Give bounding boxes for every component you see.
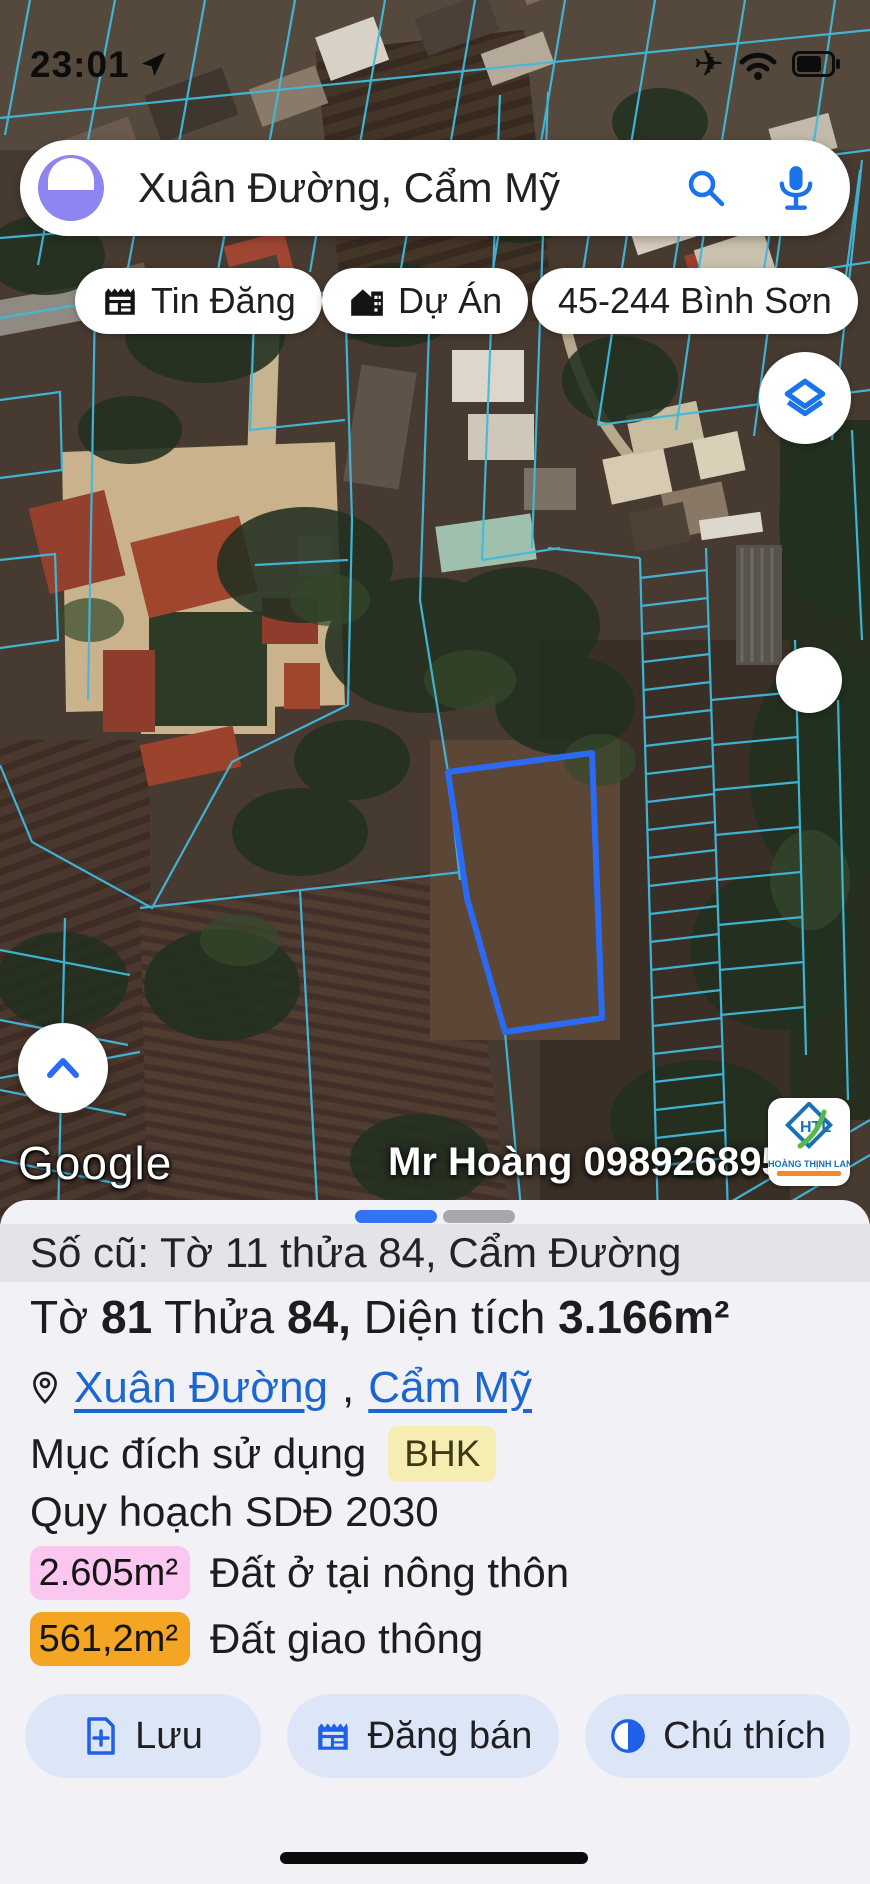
battery-icon [792, 50, 842, 78]
house-icon [348, 282, 386, 320]
zone-area-badge: 561,2m² [30, 1612, 190, 1666]
purpose-label: Mục đích sử dụng [30, 1430, 366, 1478]
location-arrow-icon [138, 50, 168, 80]
brand-logo: HTL HOÀNG THỊNH LAND [768, 1098, 850, 1186]
wifi-icon [738, 48, 778, 80]
chip-binh-son[interactable]: 45-244 Bình Sơn [532, 268, 858, 334]
chip-label: Dự Án [398, 280, 502, 322]
expand-sheet-button[interactable] [18, 1023, 108, 1113]
chip-du-an[interactable]: Dự Án [322, 268, 528, 334]
map-control-button[interactable] [776, 647, 842, 713]
district-link[interactable]: Cẩm Mỹ [368, 1363, 532, 1413]
sheet-page-indicator-active[interactable] [355, 1210, 437, 1223]
parcel-title: Tờ 81 Thửa 84, Diện tích 3.166m² [30, 1290, 729, 1344]
land-purpose-row: Mục đích sử dụng BHK [30, 1426, 496, 1482]
agent-watermark: Mr Hoàng 0989268955 [388, 1140, 806, 1185]
sheet-page-indicator[interactable] [443, 1210, 515, 1223]
contrast-icon [609, 1717, 647, 1755]
old-parcel-id: Số cũ: Tờ 11 thửa 84, Cẩm Đường [0, 1224, 870, 1282]
app-screen: 23:01 ✈ [0, 0, 870, 1884]
zone-label: Đất ở tại nông thôn [210, 1549, 569, 1597]
action-buttons: Lưu Đăng bán [0, 1694, 870, 1778]
layers-icon [780, 373, 830, 423]
location-pin-icon [30, 1369, 60, 1407]
save-button[interactable]: Lưu [25, 1694, 261, 1778]
google-logo: Google [18, 1136, 172, 1190]
chip-label: Tin Đăng [151, 280, 296, 322]
zone-row-traffic: 561,2m² Đất giao thông [30, 1612, 483, 1666]
account-avatar[interactable] [38, 155, 104, 221]
sell-button[interactable]: Đăng bán [287, 1694, 559, 1778]
newspaper-icon [101, 282, 139, 320]
file-plus-icon [83, 1715, 119, 1757]
chevron-up-icon [36, 1046, 90, 1090]
search-input[interactable]: Xuân Đường, Cẩm Mỹ [138, 140, 560, 236]
legend-button[interactable]: Chú thích [585, 1694, 850, 1778]
brand-slogan-bar [777, 1171, 841, 1176]
home-indicator[interactable] [280, 1852, 588, 1864]
newspaper-icon [314, 1717, 352, 1755]
brand-name: HOÀNG THỊNH LAND [768, 1159, 850, 1169]
clock: 23:01 [30, 44, 130, 86]
status-bar: 23:01 ✈ [0, 44, 870, 88]
zone-row-residential: 2.605m² Đất ở tại nông thôn [30, 1546, 569, 1600]
airplane-mode-icon: ✈ [694, 46, 724, 82]
purpose-badge: BHK [388, 1426, 496, 1482]
zone-label: Đất giao thông [210, 1615, 483, 1663]
chip-label: 45-244 Bình Sơn [558, 280, 832, 322]
brand-diamond-icon: HTL [780, 1102, 838, 1158]
mic-icon[interactable] [772, 164, 820, 212]
planning-title: Quy hoạch SDĐ 2030 [30, 1488, 439, 1536]
parcel-info-sheet[interactable]: Số cũ: Tờ 11 thửa 84, Cẩm Đường Tờ 81 Th… [0, 1200, 870, 1884]
search-bar[interactable]: Xuân Đường, Cẩm Mỹ [20, 140, 850, 236]
commune-link[interactable]: Xuân Đường [74, 1363, 328, 1413]
map-layers-button[interactable] [759, 352, 851, 444]
zone-area-badge: 2.605m² [30, 1546, 190, 1600]
location-row: Xuân Đường, Cẩm Mỹ [30, 1360, 532, 1416]
chip-tin-dang[interactable]: Tin Đăng [75, 268, 322, 334]
search-icon[interactable] [684, 166, 728, 210]
